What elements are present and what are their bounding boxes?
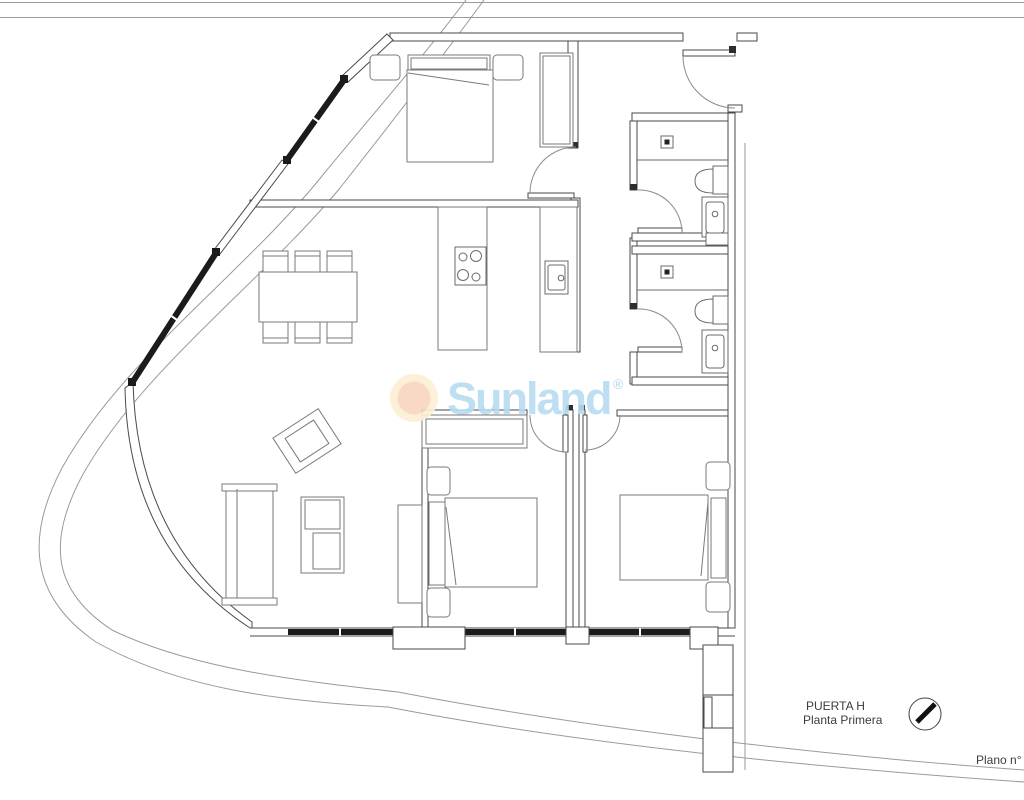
- cistern-box: [706, 233, 728, 245]
- entrance-door-arc: [683, 56, 735, 108]
- kitchen-sink-icon: [545, 261, 568, 294]
- bed-icon: [445, 498, 537, 587]
- entrance-door-hinge: [729, 46, 736, 53]
- bedroom-2-furniture: [398, 415, 537, 617]
- title-block: PUERTA H Planta Primera Plano n°: [803, 698, 1022, 767]
- watermark: Sunland ®: [390, 373, 624, 424]
- nightstand-icon: [370, 55, 400, 80]
- chair-icon: [327, 322, 352, 343]
- nightstand-icon: [706, 582, 730, 612]
- window-bottom-1-mullion: [339, 628, 341, 636]
- nightstand-icon: [493, 55, 523, 80]
- sofa-arm-top: [222, 484, 277, 491]
- armchair-frame: [273, 409, 341, 474]
- entrance-door-leaf: [683, 50, 735, 56]
- bathroom-1-door: [638, 190, 682, 233]
- toilet-tank: [713, 166, 728, 194]
- wall-niche: [398, 505, 422, 603]
- bath2-door-arc: [638, 309, 682, 352]
- nightstand-icon: [427, 467, 450, 495]
- side-unit-frame: [301, 497, 344, 573]
- master-bedroom-door: [528, 147, 576, 198]
- wall-bedroom3-top: [617, 410, 735, 416]
- chair-icon: [263, 251, 288, 272]
- chair-icon: [295, 251, 320, 272]
- window-2-cap-a: [212, 248, 220, 256]
- jamb-cap-bath1: [630, 184, 637, 190]
- chair-icon: [295, 322, 320, 343]
- logo-badge-inner: [398, 382, 431, 415]
- bathroom-sink-icon: [702, 197, 728, 237]
- shower-drain-icon: [661, 266, 673, 278]
- chair-icon: [327, 251, 352, 272]
- nightstand-icon: [706, 462, 730, 490]
- dining-area: [259, 251, 357, 343]
- shaft-frame: [703, 645, 733, 772]
- floor-plan-sheet: Sunland ® PUERTA H Planta Primera Plano …: [0, 0, 1024, 800]
- toilet-icon: [695, 296, 728, 324]
- wall-bath2-bottom: [632, 377, 728, 385]
- living-area: [222, 409, 344, 605]
- wardrobe-icon: [540, 53, 573, 147]
- master-door-arc: [530, 147, 576, 193]
- master-door-leaf: [528, 193, 574, 198]
- sofa-body: [226, 489, 273, 600]
- window-pier-2: [566, 627, 589, 644]
- sofa-arm-bottom: [222, 598, 277, 605]
- compass-needle: [917, 704, 935, 722]
- toilet-bowl: [695, 169, 713, 193]
- master-bedroom-furniture: [370, 53, 573, 162]
- bath1-door-leaf: [638, 228, 682, 233]
- sheet-frame: [0, 3, 1024, 18]
- entrance-door: [683, 46, 736, 108]
- drain-center: [665, 140, 670, 145]
- dining-chairs-bottom: [263, 322, 352, 343]
- side-unit-icon: [301, 497, 344, 573]
- toilet-icon: [695, 166, 728, 194]
- window-bottom-1: [288, 629, 395, 635]
- bathroom-2-door: [638, 309, 682, 352]
- utility-shaft: [703, 645, 733, 772]
- sheet-number-label: Plano n°: [976, 753, 1022, 767]
- toilet-tank: [713, 296, 728, 324]
- window-bottom-3-mullion: [639, 628, 641, 636]
- window-1-cap-b: [283, 156, 291, 164]
- wall-bath1-left: [630, 121, 637, 190]
- wall-top: [390, 33, 683, 41]
- wall-bath2-top: [632, 246, 728, 254]
- window-pier-1: [393, 627, 465, 649]
- registered-trademark-icon: ®: [613, 376, 624, 392]
- bathroom-1-fixtures: [637, 136, 728, 237]
- wall-master-living: [250, 200, 578, 207]
- window-bottom-2-mullion: [514, 628, 516, 636]
- logo-wordmark: Sunland: [447, 373, 611, 424]
- bath1-door-arc: [638, 190, 682, 233]
- nightstand-icon: [427, 588, 450, 617]
- cooktop-icon: [455, 247, 486, 285]
- floor-label: Planta Primera: [803, 713, 883, 727]
- sofa-icon: [222, 484, 277, 605]
- dining-table-icon: [259, 272, 357, 322]
- window-2-cap-b: [128, 378, 136, 386]
- toilet-bowl: [695, 299, 713, 323]
- drain-center: [665, 270, 670, 275]
- wall-right: [728, 113, 735, 628]
- window-1-cap-a: [340, 75, 348, 83]
- armchair-icon: [273, 409, 341, 474]
- dining-chairs-top: [263, 251, 352, 272]
- bed-icon: [620, 495, 708, 580]
- shower-drain-icon: [661, 136, 673, 148]
- jamb-cap-bath2: [630, 303, 637, 309]
- north-compass-icon: [909, 698, 941, 730]
- chair-icon: [263, 322, 288, 343]
- wall-bath1-top: [632, 113, 728, 121]
- kitchen: [438, 207, 577, 352]
- unit-label: PUERTA H: [806, 699, 865, 713]
- wall-top-right: [737, 33, 757, 41]
- bathroom-sink-icon: [702, 330, 728, 373]
- headboard-icon: [711, 498, 726, 578]
- floor-plan-drawing: Sunland ® PUERTA H Planta Primera Plano …: [0, 0, 1024, 800]
- headboard-icon: [429, 502, 445, 585]
- bedroom-3-furniture: [620, 462, 730, 612]
- bath2-door-leaf: [638, 347, 682, 352]
